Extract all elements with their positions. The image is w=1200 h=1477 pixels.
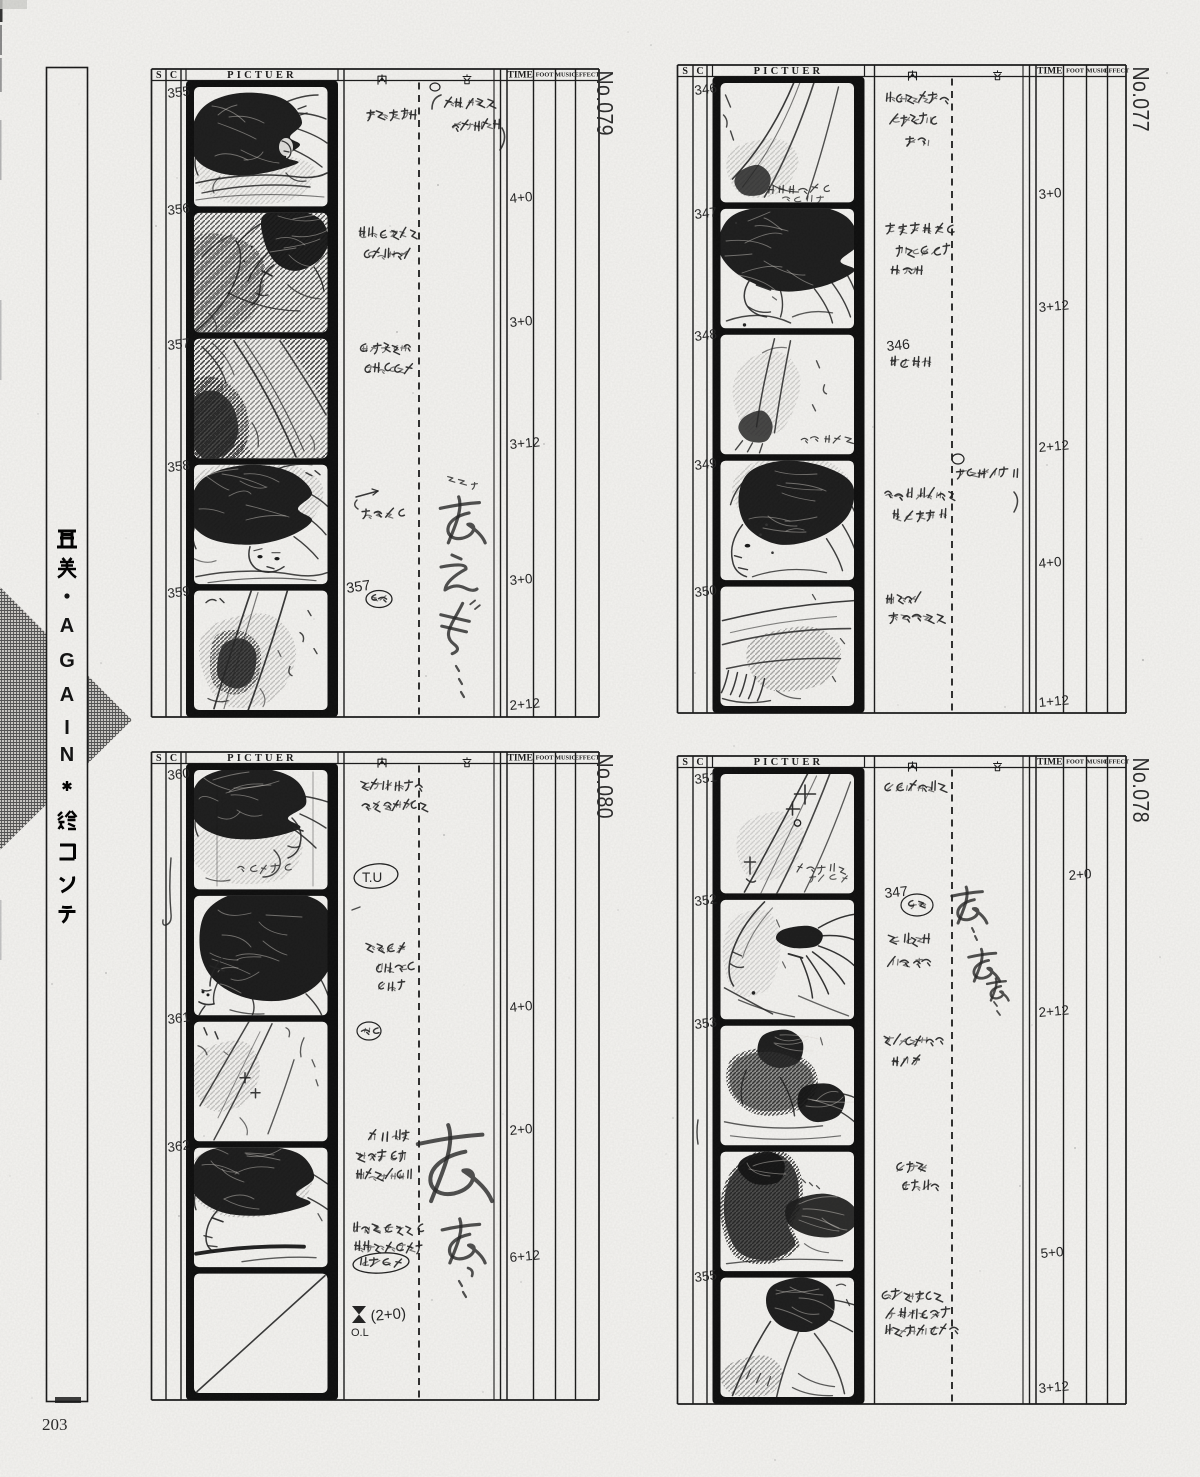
svg-text:203: 203 <box>42 1415 68 1434</box>
